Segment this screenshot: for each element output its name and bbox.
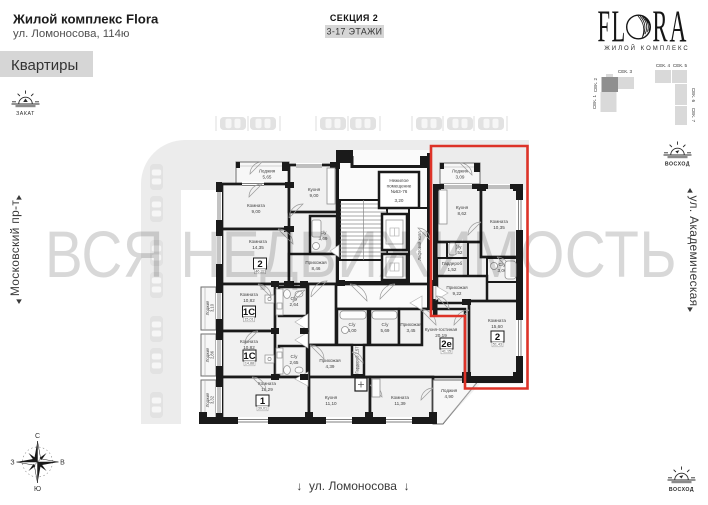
svg-text:Комната: Комната [240,292,258,297]
svg-text:С: С [35,433,40,440]
svg-text:СЕК. 2: СЕК. 2 [593,77,598,92]
svg-text:Лоджия: Лоджия [441,388,458,393]
svg-text:10,82: 10,82 [243,345,255,350]
svg-text:2: 2 [495,332,500,343]
svg-text:С/у: С/у [382,322,390,327]
svg-text:СЕК. 3: СЕК. 3 [618,69,633,74]
svg-text:1С: 1С [243,351,255,362]
svg-text:З: З [10,460,14,467]
svg-text:2,65: 2,65 [290,360,299,365]
svg-text:15,01: 15,01 [244,318,253,322]
svg-text:Комната: Комната [488,318,506,323]
svg-text:ул. Ломоносова, 114ю: ул. Ломоносова, 114ю [13,28,130,40]
svg-text:11,39: 11,39 [394,401,406,406]
svg-text:С/у: С/у [291,354,299,359]
svg-text:3,09: 3,09 [456,175,465,180]
svg-text:ЖИЛОЙ КОМПЛЕКС: ЖИЛОЙ КОМПЛЕКС [604,44,690,52]
svg-text:9,00: 9,00 [310,193,319,198]
svg-text:4,00: 4,00 [348,328,357,333]
svg-text:ЗАКАТ: ЗАКАТ [16,111,35,117]
svg-text:СЕК. 6: СЕК. 6 [691,88,696,103]
svg-text:41,15: 41,15 [442,350,451,354]
svg-text:1С: 1С [243,307,255,318]
svg-text:5,69: 5,69 [381,328,390,333]
svg-text:5,65: 5,65 [263,175,272,180]
svg-text:СЕК. 7: СЕК. 7 [691,108,696,123]
svg-text:14,88: 14,88 [245,362,254,366]
svg-text:R: R [653,1,668,52]
svg-text:10,82: 10,82 [243,298,255,303]
svg-text:8,62: 8,62 [458,211,467,216]
svg-text:Прихожая: Прихожая [400,322,422,327]
svg-text:1: 1 [260,396,266,407]
svg-text:L: L [612,1,626,52]
svg-text:51,43: 51,43 [493,343,502,347]
svg-text:Прихожая: Прихожая [319,358,341,363]
svg-text:помещение: помещение [387,184,412,189]
svg-text:С/у: С/у [349,322,357,327]
svg-text:39,01: 39,01 [258,407,267,411]
svg-text:9,00: 9,00 [252,209,261,214]
svg-text:Гардероб 1,57: Гардероб 1,57 [355,346,360,374]
svg-text:A: A [670,1,687,51]
svg-text:Кухня: Кухня [325,395,338,400]
svg-text:ВОСХОД: ВОСХОД [669,487,694,493]
svg-text:Квартиры: Квартиры [11,57,78,74]
svg-text:Комната: Комната [258,381,276,386]
svg-text:Московский пр-т: Московский пр-т [8,200,22,296]
svg-text:20,19: 20,19 [435,333,447,338]
svg-text:ВСЯ НЕДВИЖИМОСТЬ: ВСЯ НЕДВИЖИМОСТЬ [45,218,677,292]
svg-text:Лоджия: Лоджия [259,169,276,174]
svg-text:Комната: Комната [247,203,265,208]
svg-text:4,39: 4,39 [326,364,335,369]
svg-text:№63-76: №63-76 [391,189,408,194]
svg-text:3-17 ЭТАЖИ: 3-17 ЭТАЖИ [327,27,383,37]
svg-text:4,90: 4,90 [445,394,454,399]
svg-text:11,10: 11,10 [325,401,337,406]
svg-text:2,86: 2,86 [210,350,215,359]
svg-text:Кухня-гостиная: Кухня-гостиная [425,327,458,332]
svg-text:3,45: 3,45 [407,328,416,333]
svg-text:СЕКЦИЯ 2: СЕКЦИЯ 2 [330,13,378,23]
svg-text:Кухня: Кухня [456,205,469,210]
svg-text:ВОСХОД: ВОСХОД [665,162,690,168]
svg-text:СЕК. 5: СЕК. 5 [673,63,688,68]
svg-text:F: F [598,1,611,52]
svg-text:↓ ул. Ломоносова ↓: ↓ ул. Ломоносова ↓ [296,479,409,493]
svg-text:В: В [60,460,65,467]
svg-text:3,10: 3,10 [210,303,215,312]
svg-text:Комната: Комната [391,395,409,400]
svg-text:3,20: 3,20 [395,198,404,203]
svg-text:СЕК. 1: СЕК. 1 [592,94,597,109]
svg-text:Кухня: Кухня [308,187,321,192]
svg-text:3,32: 3,32 [210,395,215,404]
svg-text:ул. Академическая: ул. Академическая [687,196,701,307]
svg-text:СЕК. 4: СЕК. 4 [656,63,671,68]
svg-text:Ю: Ю [34,486,41,493]
svg-text:2,64: 2,64 [290,302,299,307]
svg-text:Нежилое: Нежилое [389,178,409,183]
svg-text:2е: 2е [441,339,452,350]
svg-text:15,60: 15,60 [491,324,503,329]
svg-text:Жилой комплекс Flora: Жилой комплекс Flora [12,12,159,27]
